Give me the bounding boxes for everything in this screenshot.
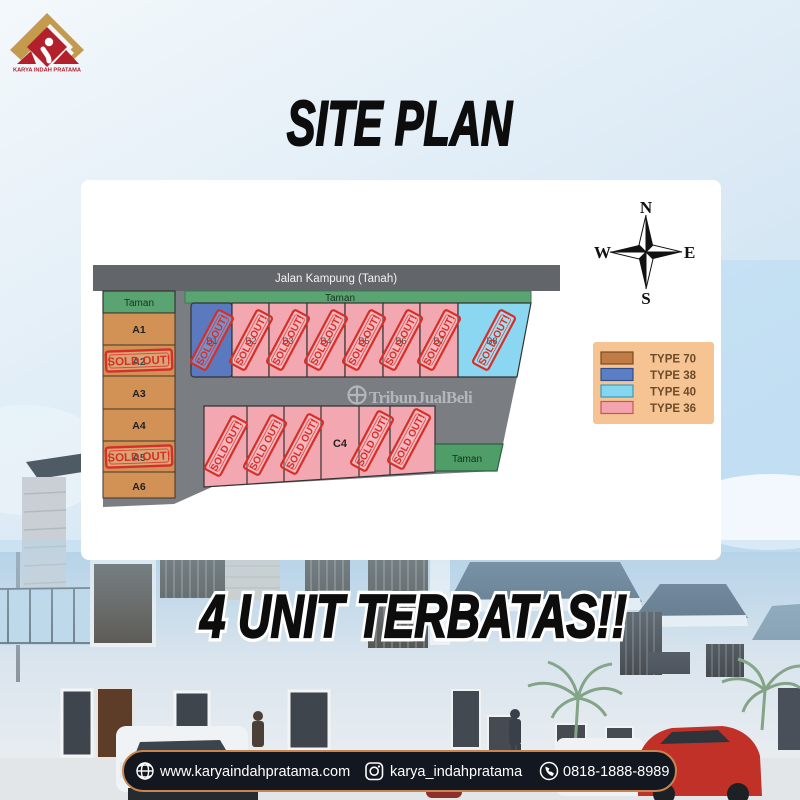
svg-text:TYPE 36: TYPE 36: [650, 403, 696, 415]
svg-text:A4: A4: [132, 420, 146, 432]
svg-text:TYPE 70: TYPE 70: [650, 354, 696, 366]
svg-text:Taman: Taman: [452, 454, 482, 465]
svg-text:4 UNIT TERBATAS!!: 4 UNIT TERBATAS!!: [199, 584, 627, 651]
svg-text:karya_indahpratama: karya_indahpratama: [390, 764, 523, 780]
svg-text:N: N: [640, 198, 653, 217]
svg-text:www.karyaindahpratama.com: www.karyaindahpratama.com: [159, 764, 350, 780]
svg-text:A1: A1: [132, 324, 146, 336]
svg-text:Taman: Taman: [325, 293, 355, 304]
svg-text:W: W: [594, 243, 611, 262]
svg-text:0818-1888-8989: 0818-1888-8989: [563, 764, 669, 780]
svg-text:TYPE 38: TYPE 38: [650, 370, 697, 382]
svg-text:C4: C4: [333, 438, 348, 450]
svg-text:A3: A3: [132, 388, 146, 400]
svg-text:TribunJualBeli: TribunJualBeli: [369, 388, 473, 407]
svg-text:Jalan Kampung (Tanah): Jalan Kampung (Tanah): [275, 273, 397, 285]
svg-text:Taman: Taman: [124, 298, 154, 309]
svg-text:SITE PLAN: SITE PLAN: [287, 88, 514, 159]
svg-text:S: S: [641, 289, 650, 308]
svg-text:E: E: [684, 243, 695, 262]
svg-text:TYPE 40: TYPE 40: [650, 387, 696, 399]
svg-text:KARYA INDAH PRATAMA: KARYA INDAH PRATAMA: [13, 68, 81, 74]
svg-text:A6: A6: [132, 481, 146, 493]
